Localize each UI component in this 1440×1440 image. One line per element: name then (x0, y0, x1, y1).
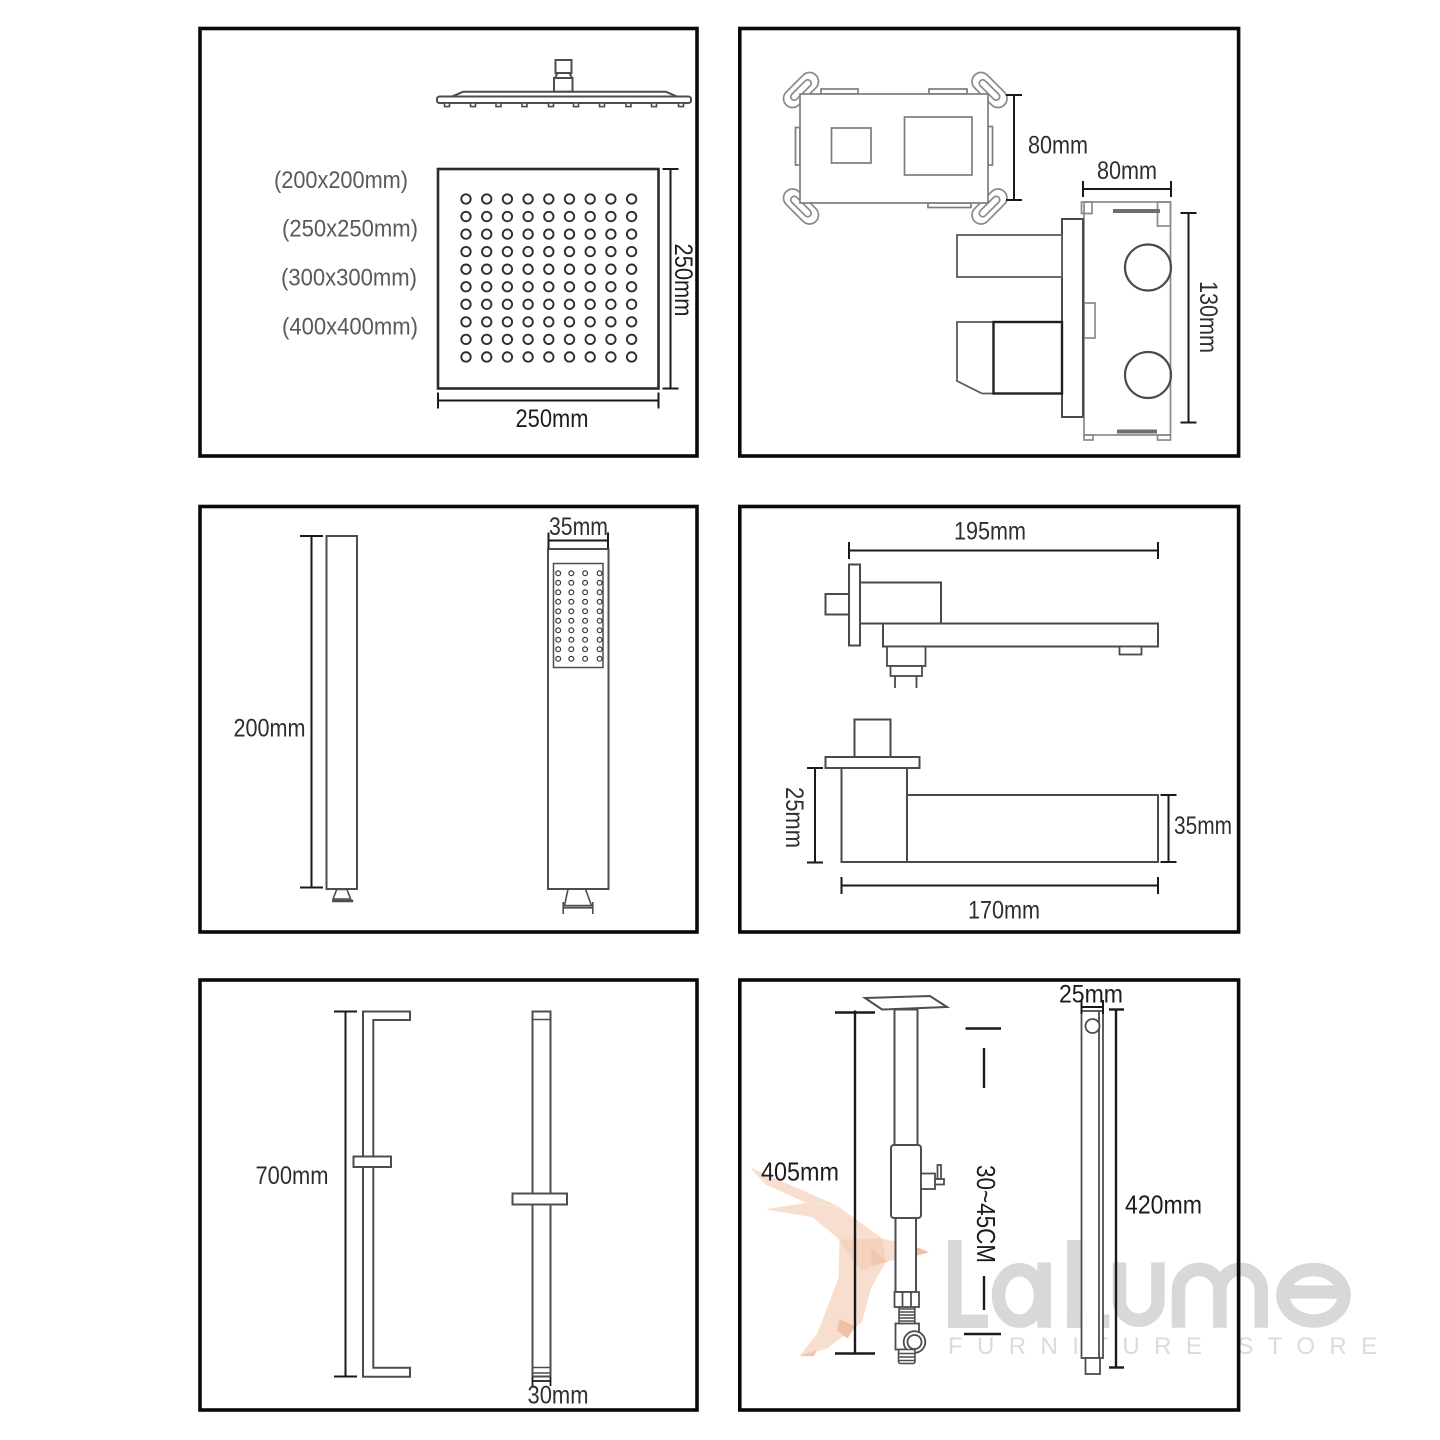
svg-text:130mm: 130mm (1194, 281, 1222, 353)
svg-text:30mm: 30mm (528, 1382, 589, 1410)
svg-text:250mm: 250mm (516, 405, 589, 433)
svg-text:25mm: 25mm (780, 787, 808, 848)
svg-text:420mm: 420mm (1125, 1190, 1202, 1220)
svg-text:(400x400mm): (400x400mm) (282, 314, 418, 341)
svg-text:35mm: 35mm (549, 513, 608, 541)
svg-text:195mm: 195mm (954, 518, 1026, 546)
svg-text:700mm: 700mm (256, 1162, 329, 1190)
svg-text:80mm: 80mm (1097, 157, 1157, 185)
svg-text:80mm: 80mm (1028, 132, 1088, 160)
svg-text:405mm: 405mm (761, 1157, 839, 1187)
svg-text:30~45CM: 30~45CM (971, 1165, 1001, 1263)
svg-text:25mm: 25mm (1059, 981, 1123, 1009)
svg-text:(300x300mm): (300x300mm) (281, 265, 417, 292)
svg-text:35mm: 35mm (1174, 812, 1232, 840)
svg-text:(200x200mm): (200x200mm) (274, 167, 408, 194)
svg-text:(250x250mm): (250x250mm) (282, 216, 418, 243)
svg-text:FURNITURE STORE: FURNITURE STORE (948, 1333, 1392, 1360)
svg-text:200mm: 200mm (234, 715, 306, 743)
svg-text:170mm: 170mm (968, 897, 1040, 925)
svg-text:250mm: 250mm (669, 244, 697, 317)
